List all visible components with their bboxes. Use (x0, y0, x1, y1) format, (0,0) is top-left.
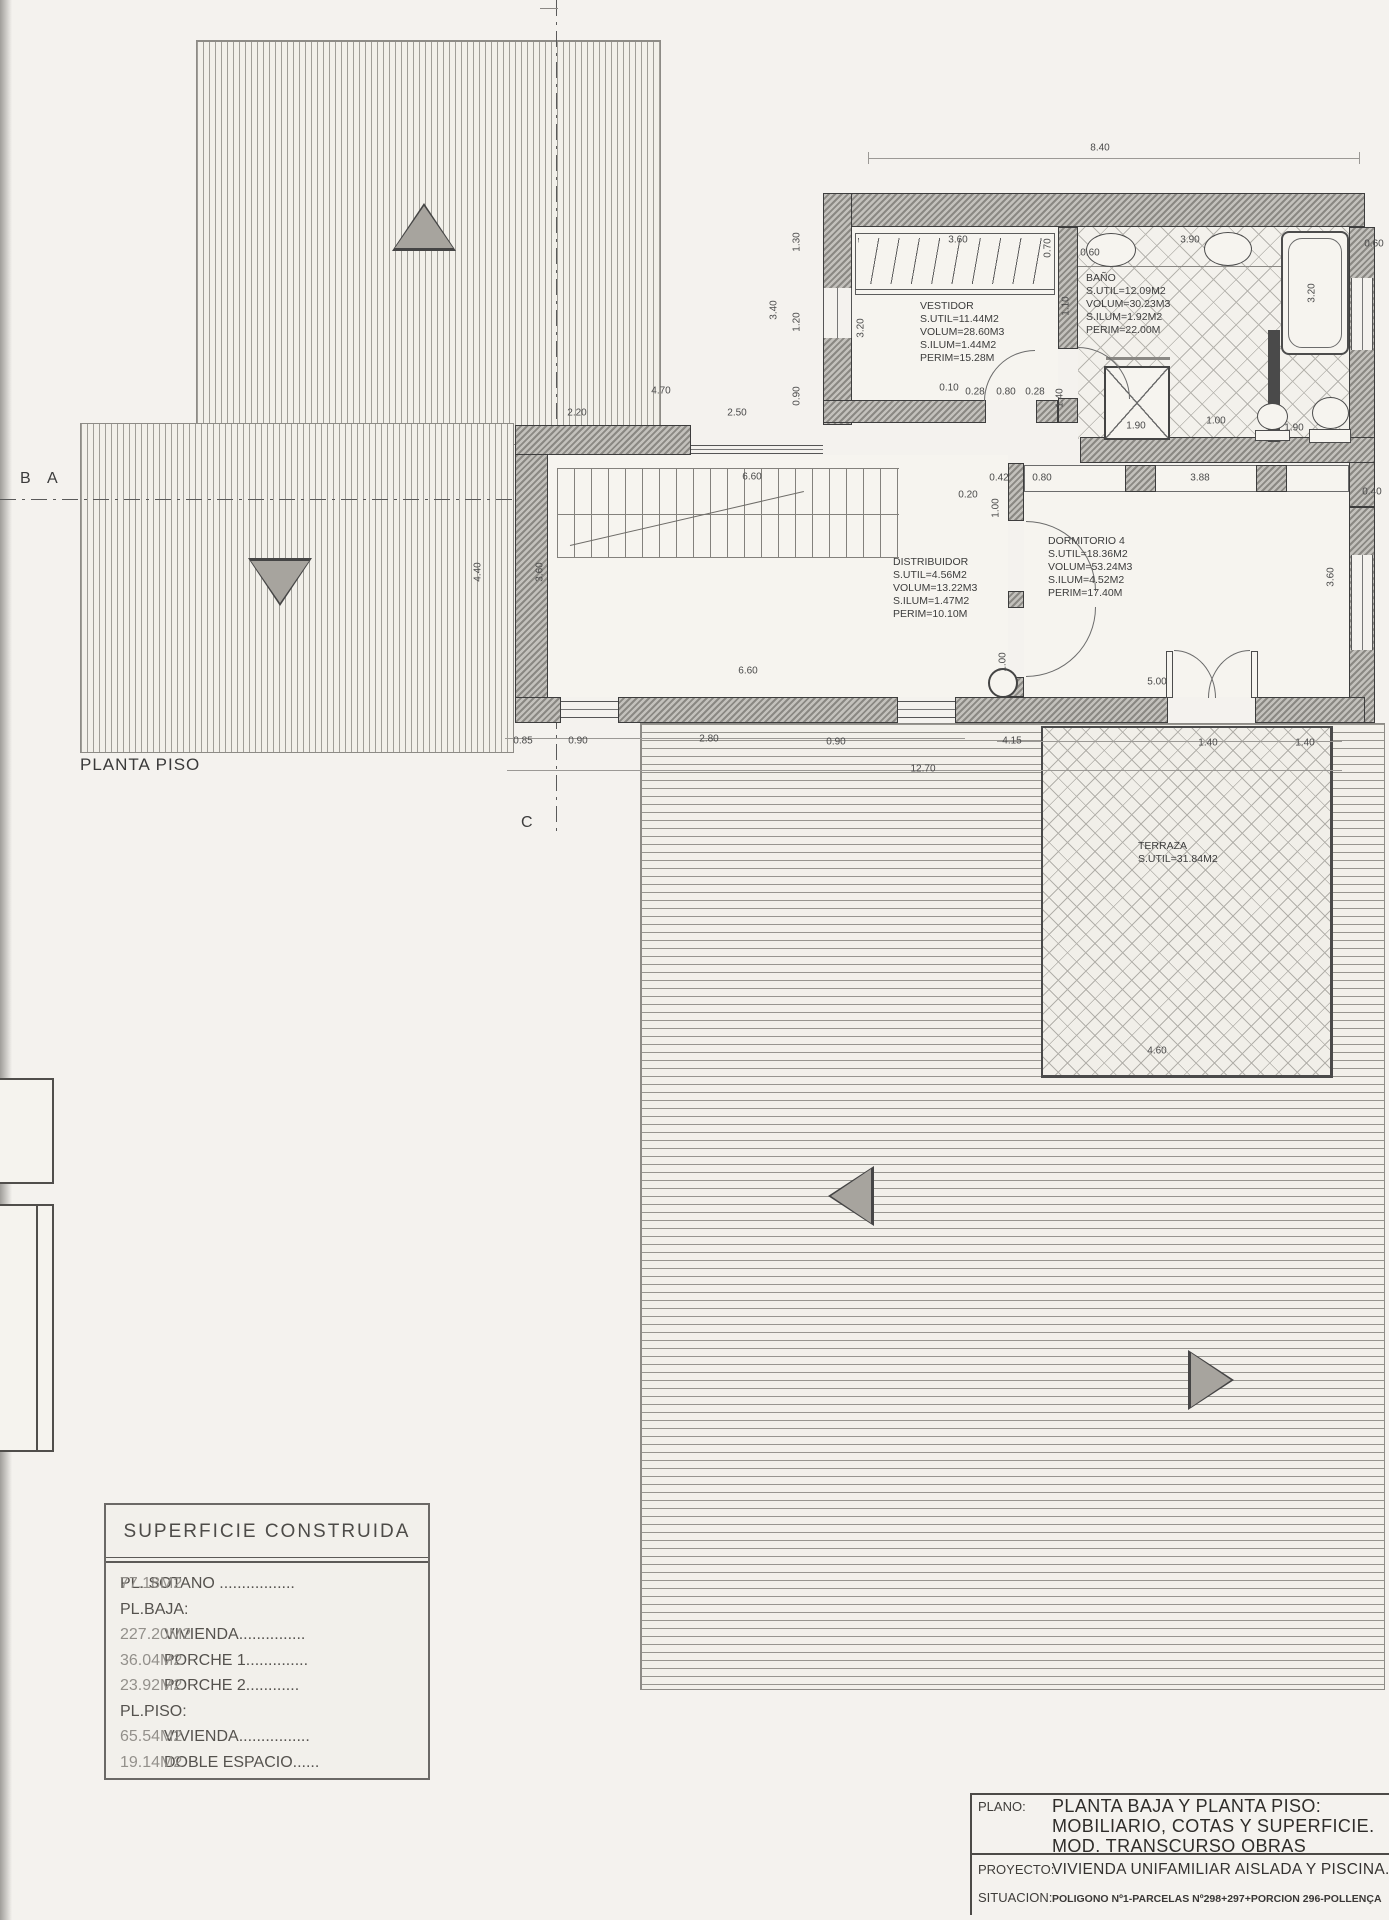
room-stat: S.UTIL=11.44M2 (920, 313, 1004, 326)
area-row-label: PL.PISO: (120, 1703, 187, 1721)
area-table-row: PORCHE 1..............36.04M2 (120, 1652, 416, 1676)
dimension-label: 1.40 (1198, 738, 1217, 749)
room-name: TERRAZA (1138, 840, 1218, 853)
window-south-2 (898, 701, 955, 718)
dimension-label: 3.60 (948, 235, 967, 246)
dimension-label: 1.40 (1055, 388, 1066, 407)
dimension-label: 5.00 (1147, 677, 1166, 688)
column (988, 668, 1018, 698)
situacion-value: POLIGONO Nº1-PARCELAS Nº298+297+PORCION … (1052, 1893, 1382, 1905)
toilet-bowl (1312, 397, 1349, 429)
title-block-top-rule (970, 1793, 1389, 1795)
window-south-1 (561, 701, 618, 718)
room-stat: S.ILUM=1.47M2 (893, 595, 977, 608)
room-stat: VOLUM=28.60M3 (920, 326, 1004, 339)
margin-plan-fragment-2 (0, 1204, 54, 1452)
dimension-label: 4.60 (1147, 1046, 1166, 1057)
area-table-row: PL. SOTANO .................77.18M2 (120, 1575, 416, 1599)
dimension-label: 1.90 (1284, 423, 1303, 434)
dimension-label: 2.80 (699, 734, 718, 745)
dimension-label: 12.70 (910, 764, 935, 775)
dimension-label: 1.00 (998, 652, 1009, 671)
room-stat: S.ILUM=1.92M2 (1086, 311, 1170, 324)
dimension-label: 0.90 (826, 737, 845, 748)
dimension-label: 4.40 (473, 562, 484, 581)
dimension-label: 6.60 (738, 666, 757, 677)
dimension-label: 2.50 (727, 408, 746, 419)
plano-line-1: PLANTA BAJA Y PLANTA PISO: (1052, 1796, 1321, 1817)
dim-line-840 (868, 158, 1360, 159)
room-stat: S.UTIL=18.36M2 (1048, 548, 1132, 561)
dimension-label: 2.20 (567, 408, 586, 419)
wall-east-upper (1349, 227, 1375, 507)
room-stat: VOLUM=30.23M3 (1086, 298, 1170, 311)
wall-partition-dorm-1 (1008, 463, 1024, 521)
area-row-label: PL.BAJA: (120, 1601, 188, 1619)
floor-plan-title: PLANTA PISO (80, 755, 200, 775)
wall-south-2 (618, 697, 898, 723)
dimension-label: 1.00 (1206, 416, 1225, 427)
section-marker-a: A (47, 470, 58, 488)
dimension-label: 3.20 (1307, 283, 1318, 302)
plano-line-2: MOBILIARIO, COTAS Y SUPERFICIE. (1052, 1816, 1374, 1837)
room-stat: S.ILUM=4.52M2 (1048, 574, 1132, 587)
room-stat: PERIM=15.28M (920, 352, 1004, 365)
dimension-label: 1.30 (792, 232, 803, 251)
room-stat: VOLUM=13.22M3 (893, 582, 977, 595)
dimension-label: 4.15 (1002, 736, 1021, 747)
area-row-value: 65.54M2 (120, 1728, 182, 1746)
area-table-rows: PL. SOTANO .................77.18M2PL.BA… (106, 1505, 432, 1782)
dimension-label: 1.20 (792, 312, 803, 331)
dimension-label: 0.10 (939, 383, 958, 394)
fragment-inner-line (36, 1206, 38, 1450)
roof-area-left (80, 423, 514, 753)
plano-line-3: MOD. TRANSCURSO OBRAS (1052, 1836, 1306, 1857)
dimension-label: 0.42 (989, 473, 1008, 484)
area-table-row: VIVIENDA................65.54M2 (120, 1728, 416, 1752)
terrace-area (1041, 726, 1333, 1078)
staircase-center-line (557, 514, 899, 515)
dimension-label: 6.60 (742, 472, 761, 483)
dimension-label: 1.00 (991, 498, 1002, 517)
dimension-label: 0.60 (1364, 239, 1383, 250)
window-bano-east (1351, 278, 1373, 350)
area-row-value: 23.92M2 (120, 1677, 182, 1695)
dimension-label: 0.60 (1080, 248, 1099, 259)
closet-rail-line (856, 289, 1054, 290)
room-stat: S.UTIL=4.56M2 (893, 569, 977, 582)
wall-partition-dorm-2 (1008, 591, 1024, 608)
room-name: DISTRIBUIDOR (893, 556, 977, 569)
room-name: DORMITORIO 4 (1048, 535, 1132, 548)
room-stat: PERIM=22.00M (1086, 324, 1170, 337)
dim-tick (1359, 152, 1360, 164)
wall-south-3 (955, 697, 1168, 723)
room-stat: PERIM=17.40M (1048, 587, 1132, 600)
area-table-row: DOBLE ESPACIO......19.14M2 (120, 1754, 416, 1778)
wall-northwest-band (515, 425, 691, 455)
wall-south-1 (515, 697, 561, 723)
room-name: BAÑO (1086, 272, 1170, 285)
room-stat: PERIM=10.10M (893, 608, 977, 621)
wall-north (833, 193, 1365, 227)
margin-plan-fragment-1 (0, 1078, 54, 1184)
dimension-label: 8.40 (1090, 143, 1109, 154)
dim-chain-2 (997, 741, 1342, 742)
dimension-label: 0.85 (513, 736, 532, 747)
toilet-tank (1309, 429, 1351, 443)
wall-vestidor-bano-partition (1058, 227, 1078, 349)
wall-vestidor-south-a (823, 400, 986, 423)
dimension-label: 4.70 (651, 386, 670, 397)
area-row-value: 19.14M2 (120, 1754, 182, 1772)
scanner-edge-shadow (0, 0, 12, 1920)
dormitorio-closet-band (1024, 465, 1349, 492)
room-label-dormitorio: DORMITORIO 4 S.UTIL=18.36M2 VOLUM=53.24M… (1048, 535, 1132, 600)
room-label-distribuidor: DISTRIBUIDOR S.UTIL=4.56M2 VOLUM=13.22M3… (893, 556, 977, 621)
situacion-label: SITUACION: (978, 1890, 1052, 1905)
closet-pier-1 (1125, 465, 1156, 492)
room-name: VESTIDOR (920, 300, 1004, 313)
floor-plan-canvas: B A C (0, 0, 1389, 1920)
dimension-label: 0.90 (568, 736, 587, 747)
dimension-label: 3.40 (769, 300, 780, 319)
dimension-label: 0.80 (1032, 473, 1051, 484)
room-stat: VOLUM=53.24M3 (1048, 561, 1132, 574)
sink-2 (1204, 232, 1252, 266)
dimension-label: 3.20 (856, 318, 867, 337)
area-table-row: PL.PISO: (120, 1703, 416, 1727)
dimension-label: 3.60 (535, 562, 546, 581)
french-door-leaf-right (1251, 651, 1258, 698)
section-marker-b: B (20, 470, 31, 488)
section-marker-c: C (521, 814, 533, 832)
window-dormitorio-east (1351, 555, 1373, 650)
dimension-label: 3.90 (1180, 235, 1199, 246)
closet-pier-2 (1256, 465, 1287, 492)
dimension-label: 0.28 (1025, 387, 1044, 398)
wall-south-4 (1255, 697, 1365, 723)
area-table-row: VIVIENDA...............227.20M2 (120, 1626, 416, 1650)
area-row-value: 227.20M2 (120, 1626, 191, 1644)
room-label-vestidor: VESTIDOR S.UTIL=11.44M2 VOLUM=28.60M3 S.… (920, 300, 1004, 365)
area-row-value: 36.04M2 (120, 1652, 182, 1670)
dimension-label: 3.88 (1190, 473, 1209, 484)
dimension-label: 1.90 (1126, 421, 1145, 432)
dimension-label: 0.70 (1043, 238, 1054, 257)
staircase (557, 468, 899, 558)
shower-shelf (1106, 357, 1170, 360)
room-stat: S.UTIL=31.84M2 (1138, 853, 1218, 866)
plano-label: PLANO: (978, 1799, 1026, 1814)
dimension-label: 0.28 (965, 387, 984, 398)
french-door-leaf-left (1166, 651, 1173, 698)
proyecto-value: VIVIENDA UNIFAMILIAR AISLADA Y PISCINA. (1052, 1861, 1389, 1879)
area-row-value: 77.18M2 (120, 1575, 182, 1593)
room-stat: S.UTIL=12.09M2 (1086, 285, 1170, 298)
room-label-terraza: TERRAZA S.UTIL=31.84M2 (1138, 840, 1218, 866)
room-label-bano: BAÑO S.UTIL=12.09M2 VOLUM=30.23M3 S.ILUM… (1086, 272, 1170, 337)
area-table-row: PORCHE 2............23.92M2 (120, 1677, 416, 1701)
dimension-label: 0.20 (958, 490, 977, 501)
dimension-label: 1.40 (1295, 738, 1314, 749)
room-stat: S.ILUM=1.44M2 (920, 339, 1004, 352)
dimension-label: 0.90 (792, 386, 803, 405)
window-vestidor-west (823, 288, 852, 338)
dim-tick (868, 152, 869, 164)
area-table-row: PL.BAJA: (120, 1601, 416, 1625)
dimension-label: 0.40 (1362, 487, 1381, 498)
section-tick-top (540, 8, 558, 9)
proyecto-label: PROYECTO: (978, 1862, 1054, 1877)
dimension-label: 0.80 (996, 387, 1015, 398)
dimension-label: 3.60 (1326, 567, 1337, 586)
area-table: SUPERFICIE CONSTRUIDA PL. SOTANO .......… (104, 1503, 430, 1780)
window-north-band (691, 445, 823, 454)
dimension-label: 1.10 (1061, 296, 1072, 315)
